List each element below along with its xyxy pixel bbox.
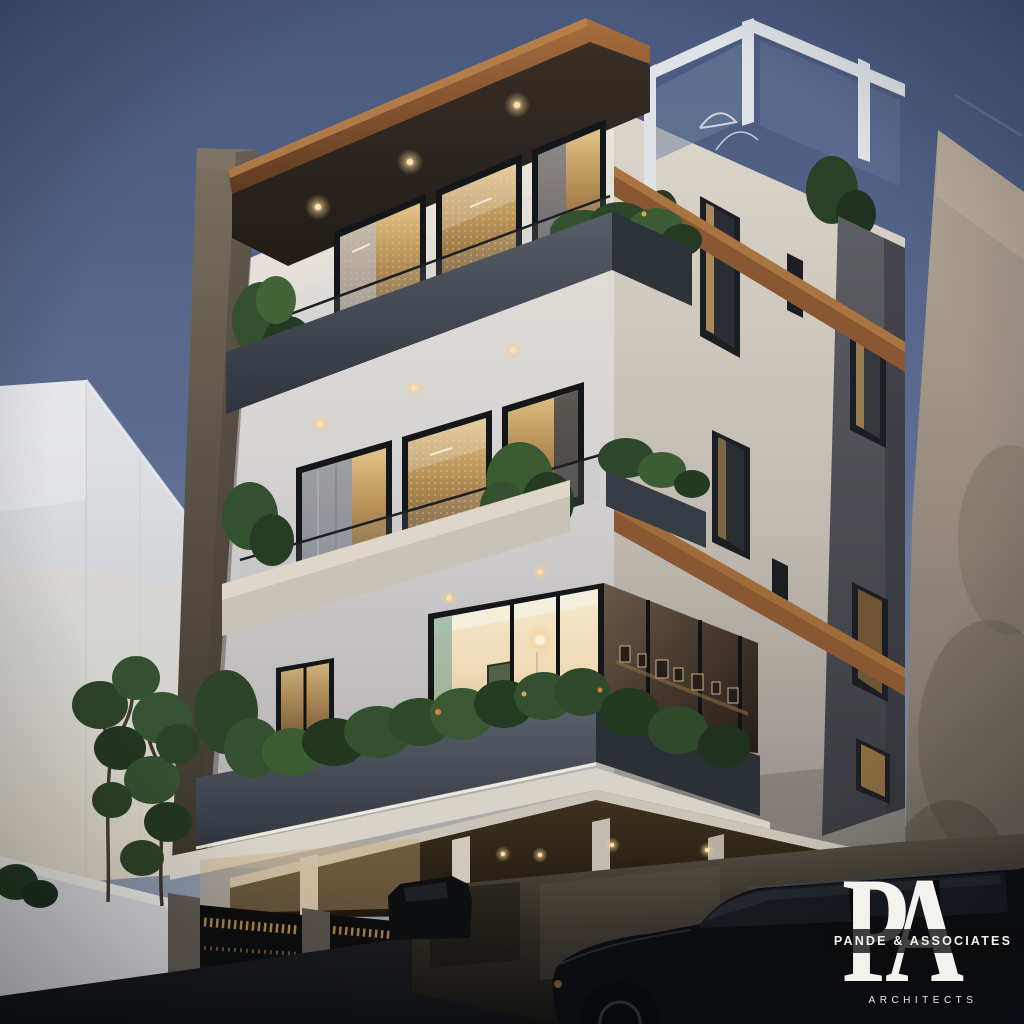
architectural-render-scene: PA PANDE & ASSOCIATES ARCHITECTS: [0, 0, 1024, 1024]
firm-subtitle: ARCHITECTS: [826, 995, 1020, 1006]
firm-name-band: PANDE & ASSOCIATES: [826, 929, 1020, 953]
firm-name: PANDE & ASSOCIATES: [834, 934, 1012, 948]
